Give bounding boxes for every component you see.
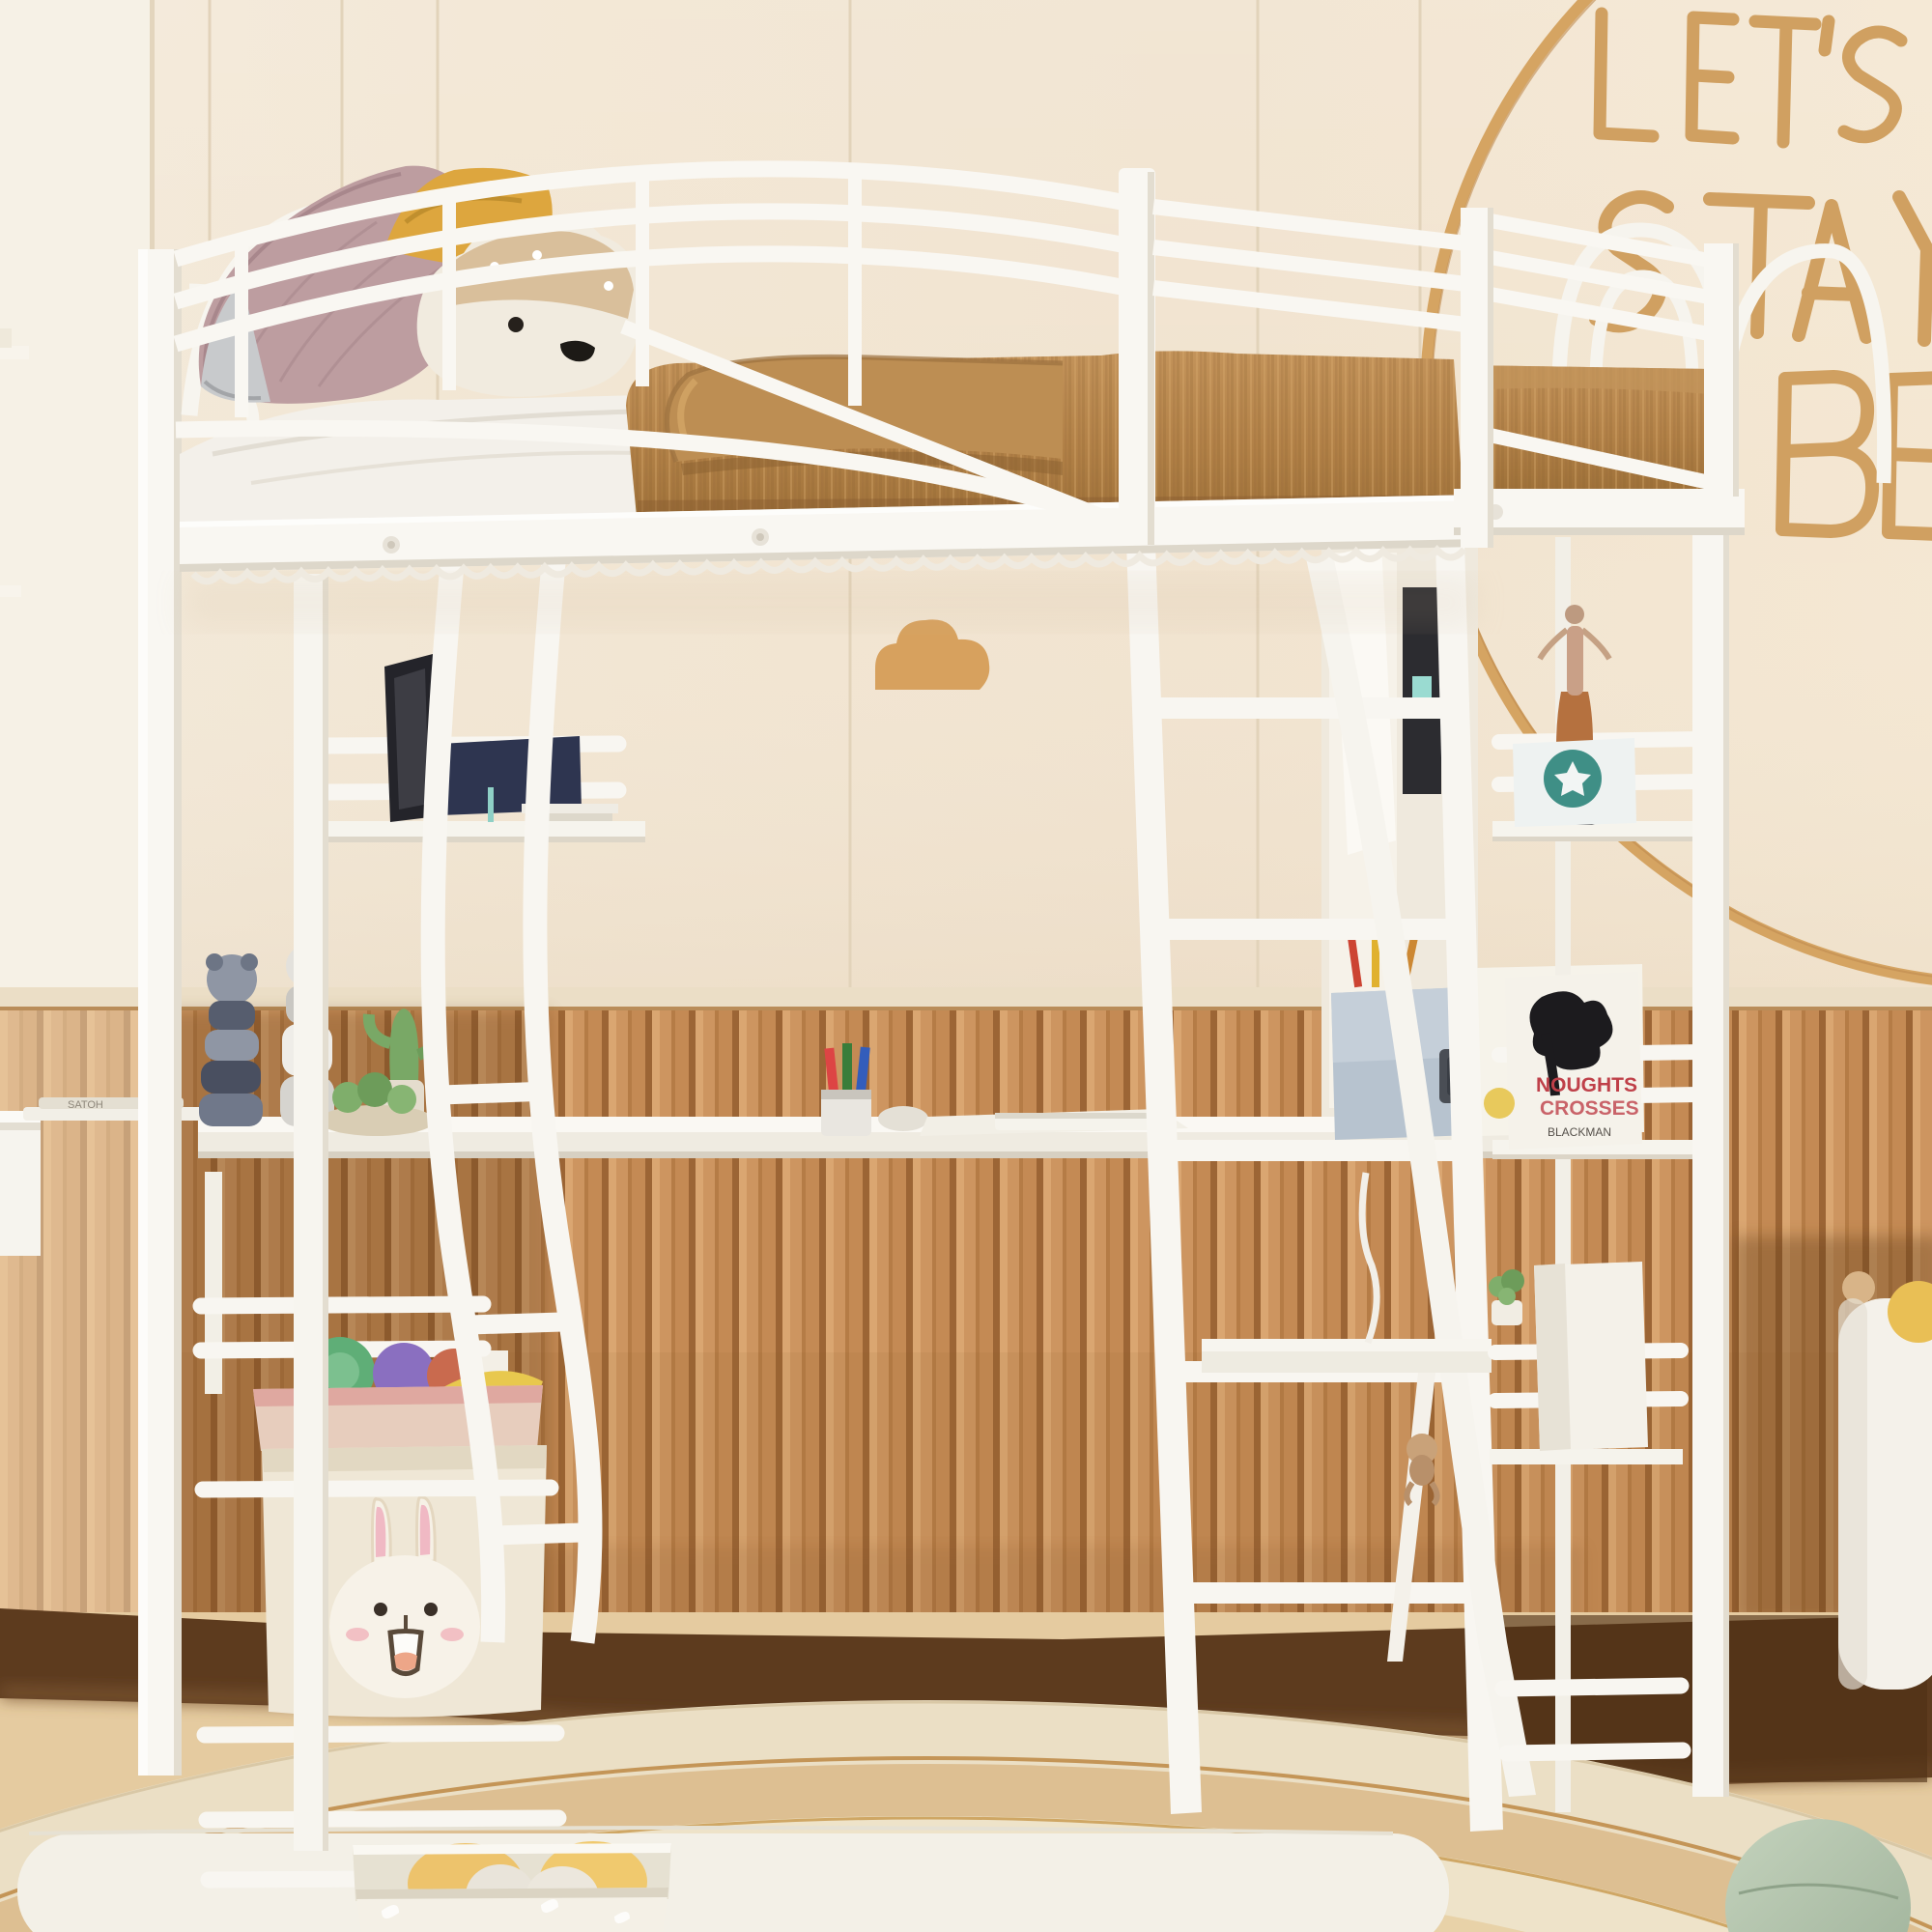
- svg-text:BLACKMAN: BLACKMAN: [1548, 1125, 1611, 1139]
- svg-text:NOUGHTS: NOUGHTS: [1536, 1074, 1637, 1096]
- svg-text:SATOH: SATOH: [68, 1099, 103, 1111]
- svg-text:CROSSES: CROSSES: [1540, 1097, 1639, 1120]
